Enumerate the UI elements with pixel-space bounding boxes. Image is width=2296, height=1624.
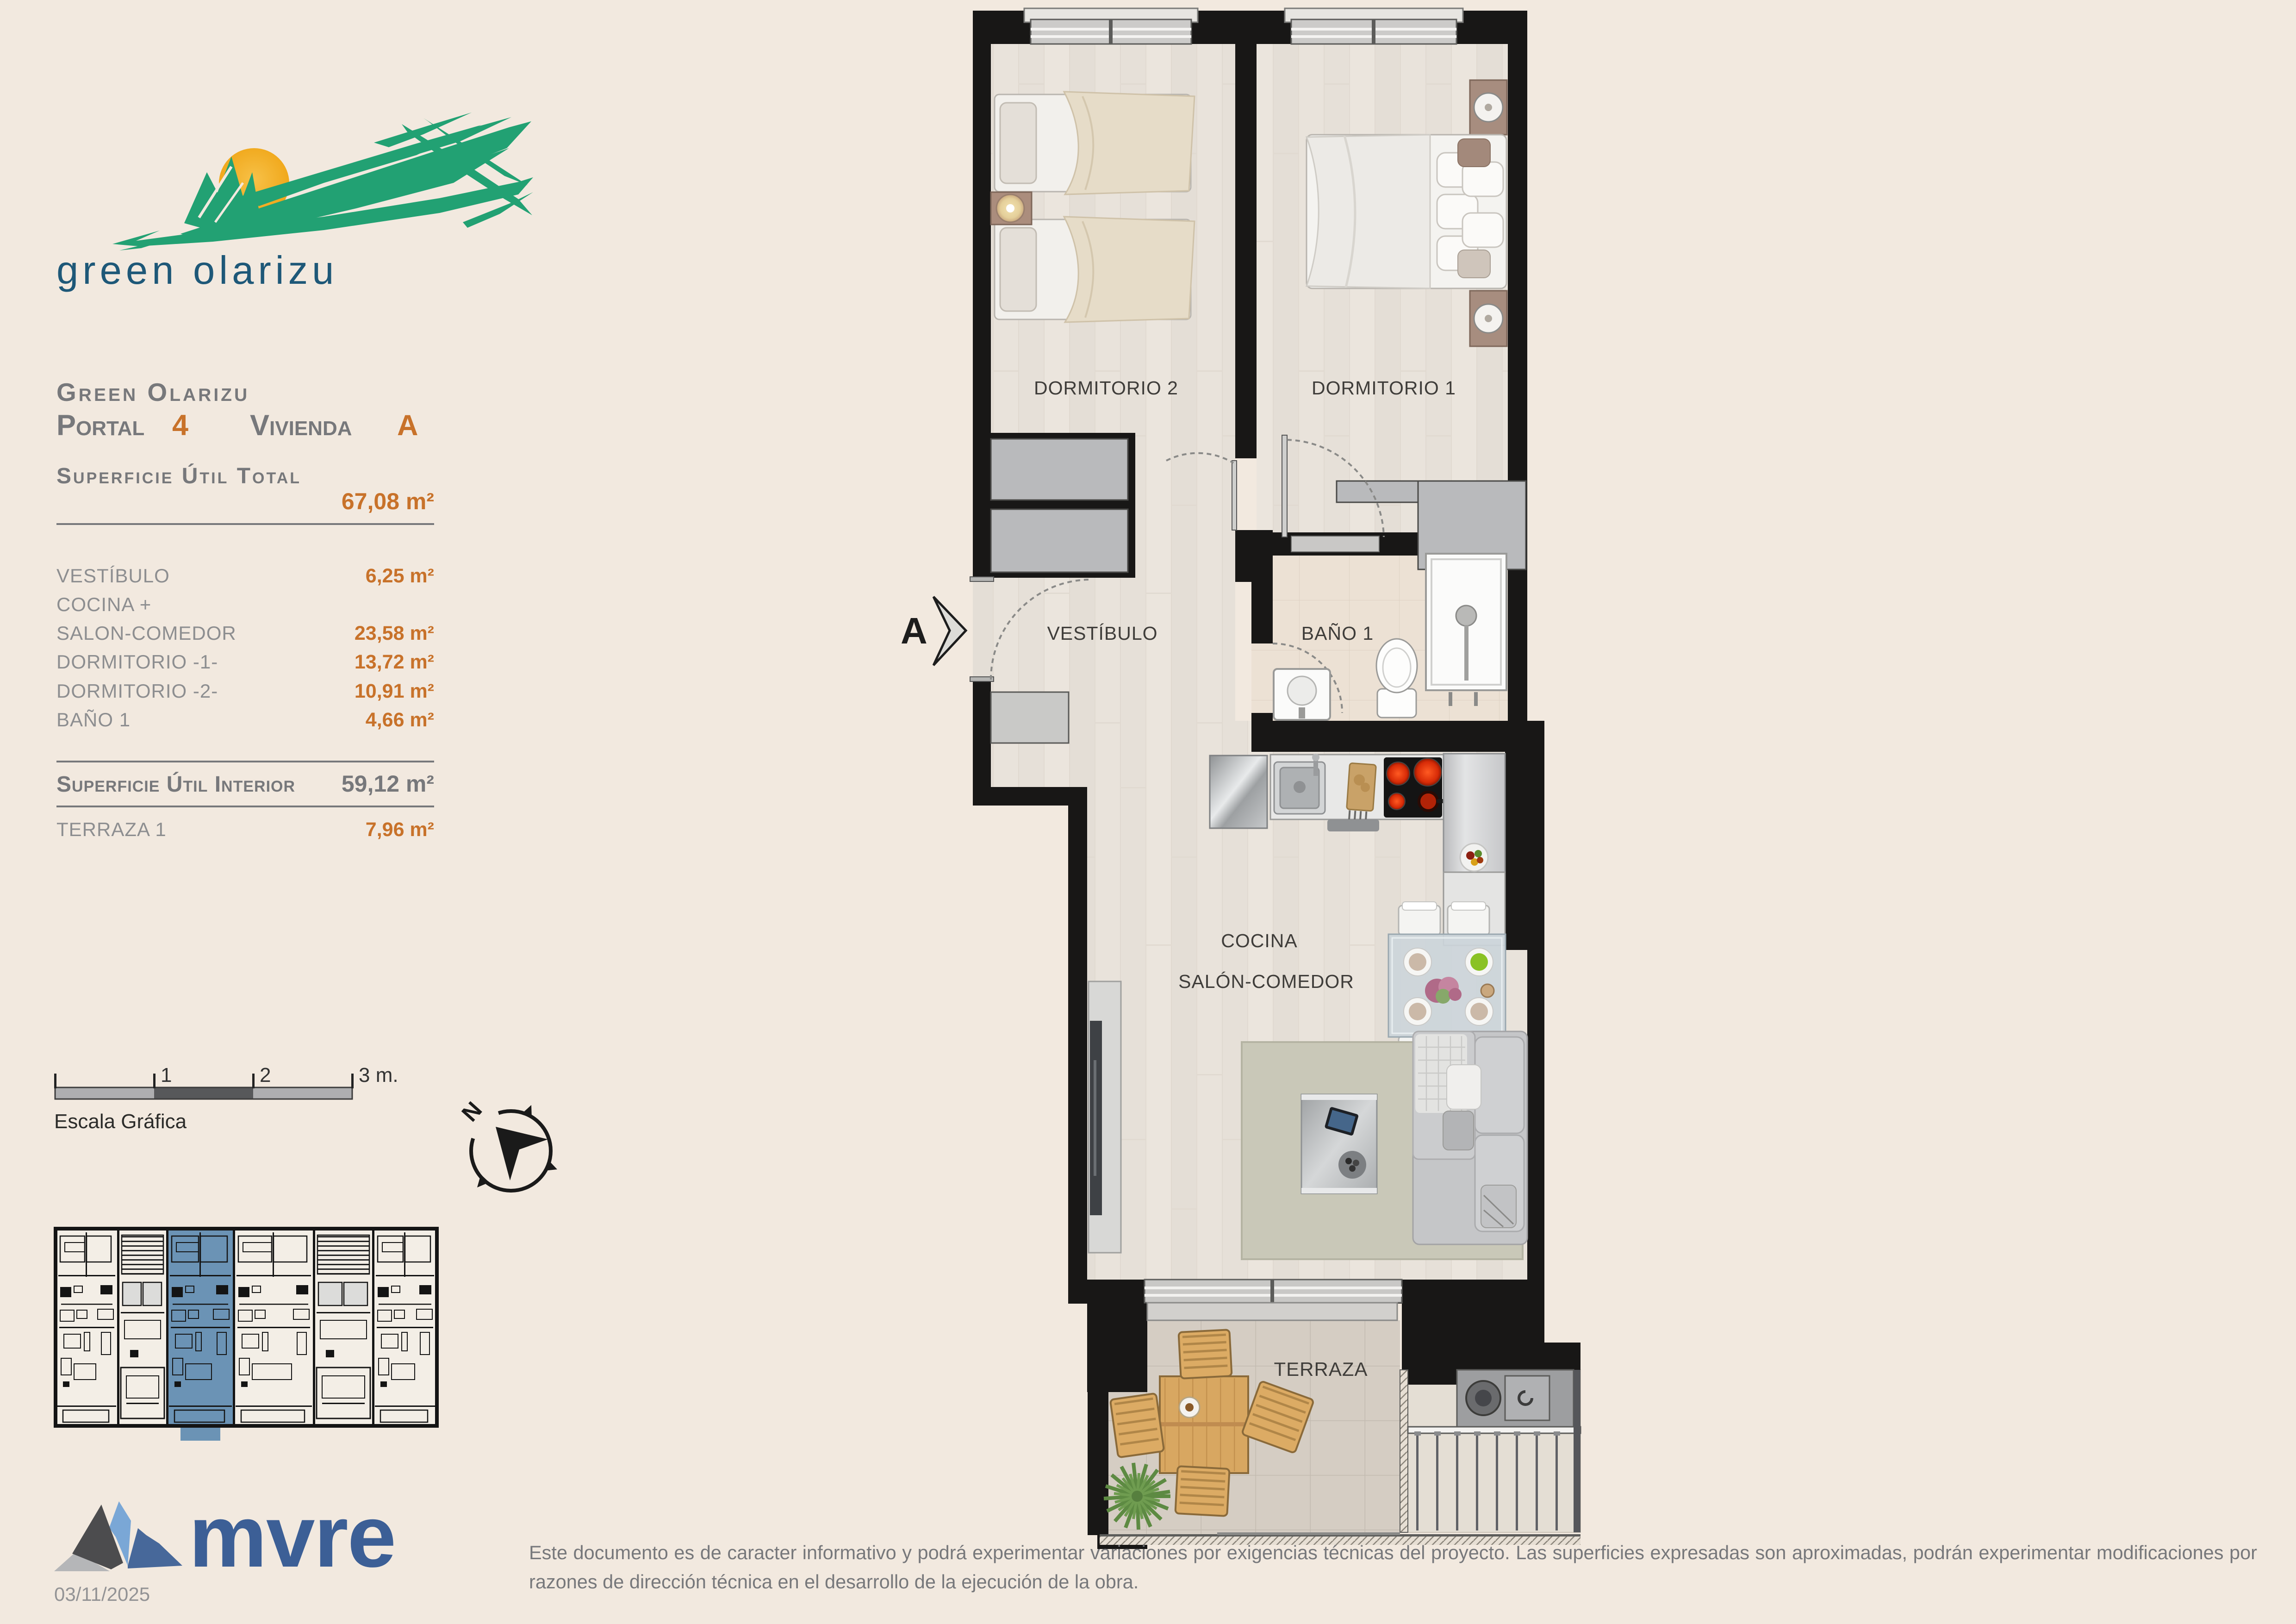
svg-text:3 m.: 3 m.	[359, 1064, 398, 1087]
svg-text:TERRAZA: TERRAZA	[1274, 1358, 1368, 1380]
svg-text:DORMITORIO 1: DORMITORIO 1	[1312, 377, 1456, 399]
svg-text:2: 2	[260, 1064, 271, 1087]
svg-text:A: A	[901, 610, 927, 651]
svg-text:SALÓN-COMEDOR: SALÓN-COMEDOR	[1178, 971, 1354, 992]
svg-text:1: 1	[161, 1064, 172, 1087]
svg-text:BAÑO 1: BAÑO 1	[1301, 623, 1374, 644]
svg-text:VESTÍBULO: VESTÍBULO	[1047, 623, 1157, 644]
svg-text:mvre: mvre	[189, 1487, 395, 1586]
svg-text:COCINA: COCINA	[1221, 930, 1297, 951]
svg-text:DORMITORIO 2: DORMITORIO 2	[1034, 377, 1178, 399]
